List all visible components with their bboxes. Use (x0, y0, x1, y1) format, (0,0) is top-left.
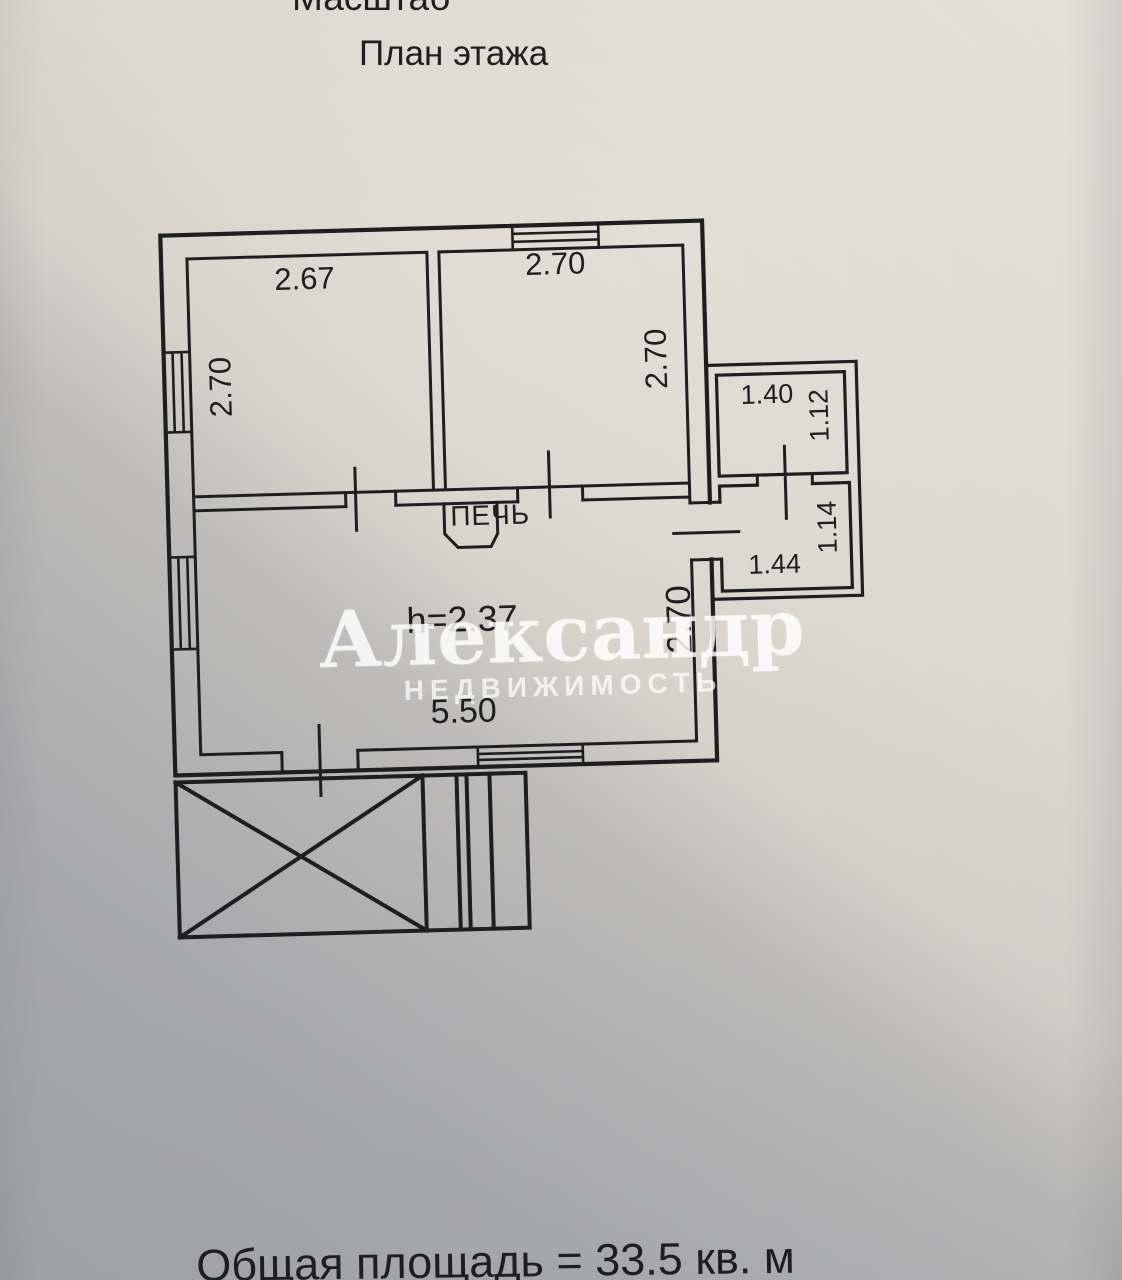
watermark-agency-name: Александр (318, 589, 806, 681)
stove-label: ПЕЧЬ (450, 500, 531, 530)
porch-and-steps (176, 773, 530, 938)
dim-top-left-room-width: 2.67 (274, 262, 335, 295)
total-area-label: Общая площадь = 33.5 кв. м (196, 1235, 795, 1280)
floorplan-drawing-area: 2.67 2.70 2.70 2.70 ПЕЧЬ h=2.37 5.50 2.7… (0, 0, 1122, 1280)
dim-top-right-room-width: 2.70 (525, 247, 586, 280)
dim-annex-top-room-width: 1.40 (740, 381, 793, 409)
dim-top-left-room-depth: 2.70 (204, 356, 237, 417)
dim-annex-top-room-depth: 1.12 (805, 389, 833, 442)
dim-top-right-room-depth: 2.70 (640, 328, 673, 389)
dim-annex-bottom-room-width: 1.44 (748, 550, 801, 578)
floorplan-photo: Масштаб План этажа (0, 0, 1122, 1280)
dim-annex-bottom-room-depth: 1.14 (813, 501, 841, 554)
